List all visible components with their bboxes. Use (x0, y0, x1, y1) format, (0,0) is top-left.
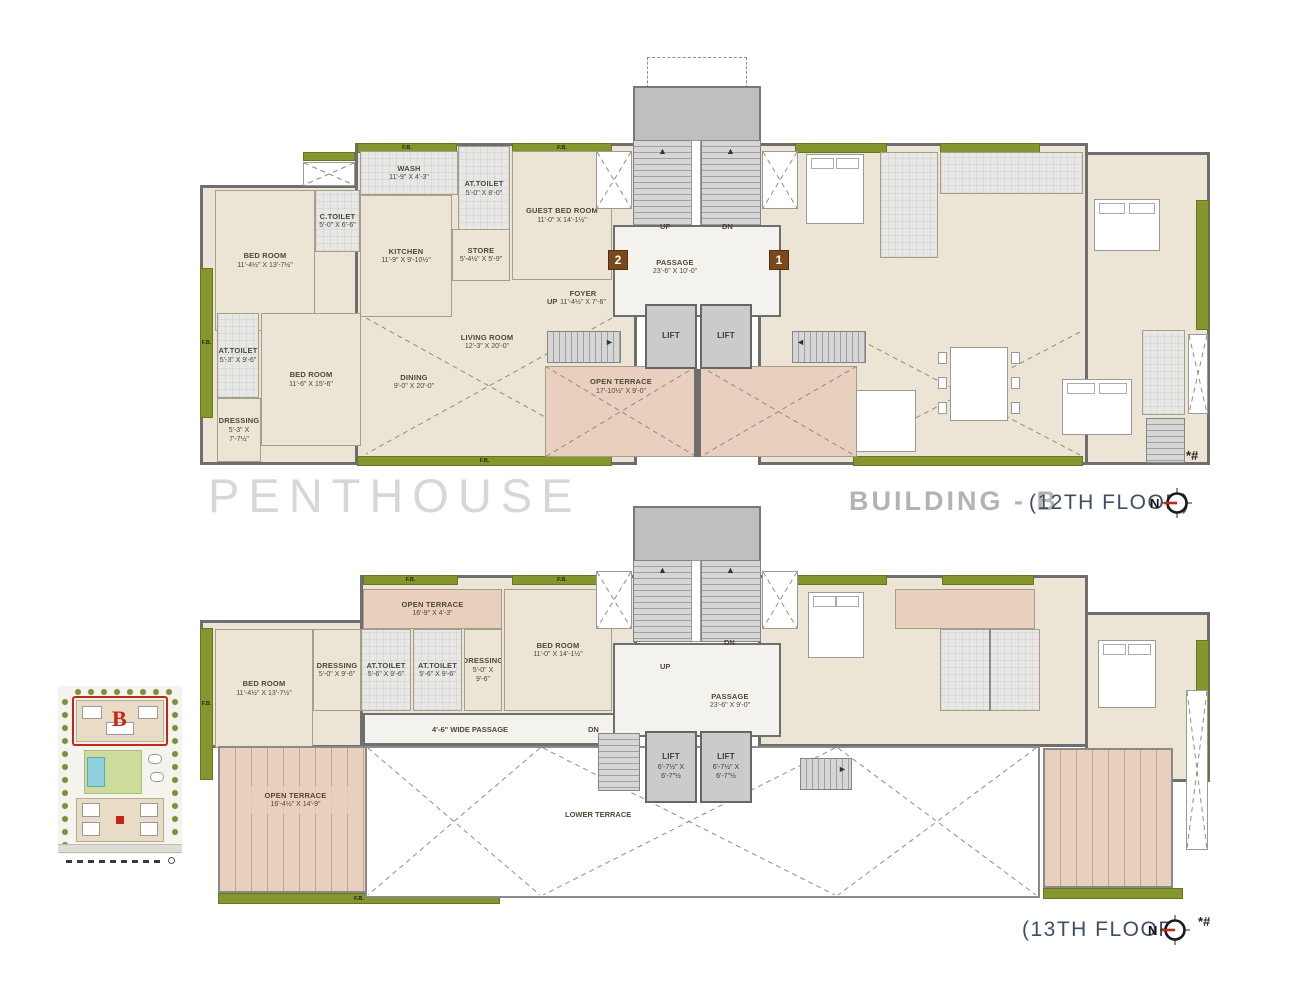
road-end-marker (168, 857, 175, 864)
pool (87, 757, 105, 787)
trees (60, 696, 71, 844)
floorplan-sheet: F.B. F.B. F.B. F.B. BED ROOM 11'-4½" X 1… (0, 0, 1300, 1000)
building-wing (140, 803, 158, 817)
building-wing (82, 803, 100, 817)
garden-feature (150, 772, 164, 782)
site-key-plan: B (0, 0, 1300, 1000)
road (58, 844, 182, 853)
building-core (116, 816, 124, 824)
building-b-letter: B (112, 708, 127, 730)
trees (170, 696, 181, 836)
road-markings (66, 860, 162, 863)
building-wing (82, 822, 100, 836)
building-wing (140, 822, 158, 836)
garden-feature (148, 754, 162, 764)
